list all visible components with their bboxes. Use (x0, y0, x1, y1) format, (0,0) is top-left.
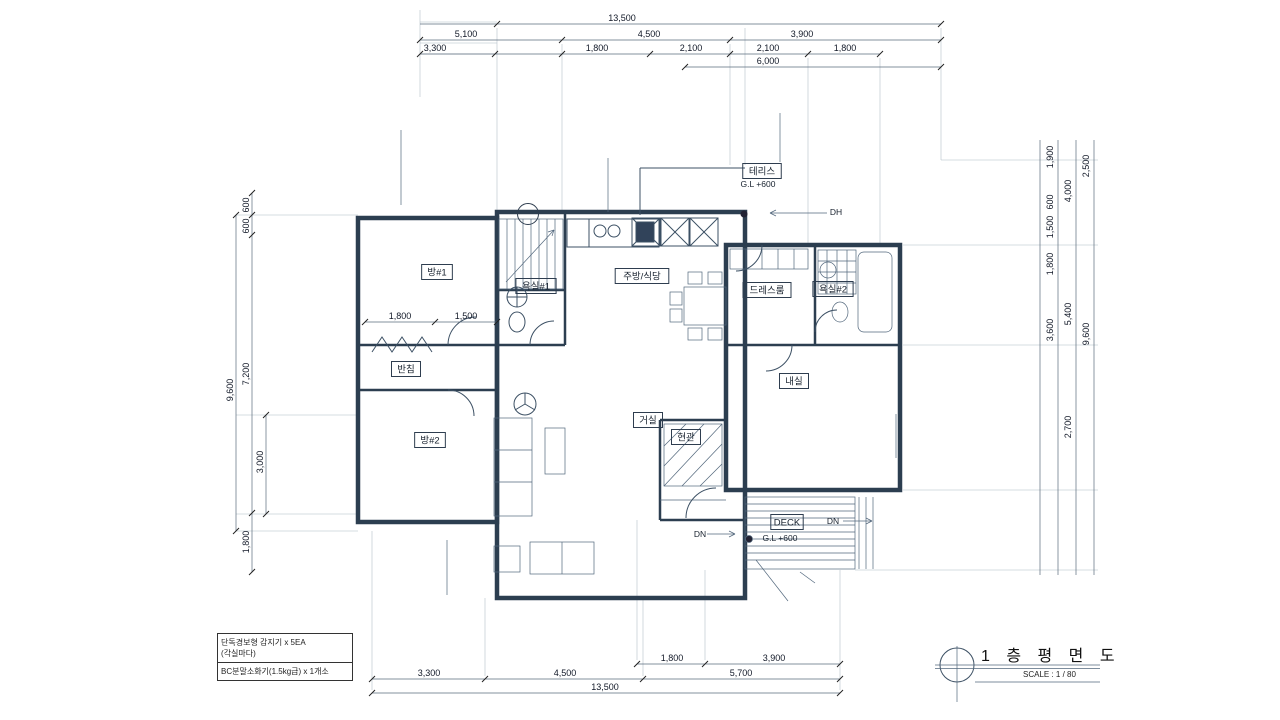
dimension-text: 2,500 (1081, 155, 1091, 178)
dimension-text: 600 (1045, 194, 1055, 209)
room-label: DECK (771, 515, 803, 530)
dimension-text: 9,600 (1081, 323, 1091, 346)
dimension-text: 5,700 (730, 668, 753, 678)
dimension-text: 1,800 (1045, 253, 1055, 276)
ceiling-fan (514, 393, 536, 415)
dimension-text: 4,000 (1063, 180, 1073, 203)
dimension-text: 13,500 (608, 13, 636, 23)
wardrobe (730, 249, 808, 269)
dimension-text: G.L +600 (741, 179, 776, 189)
dimension-text: 방#1 (427, 268, 446, 279)
dimension-text: 600 (241, 218, 251, 233)
dimension-text: 1,900 (1045, 146, 1055, 169)
dimension-text: 4,500 (638, 29, 661, 39)
room-label: 거실 (634, 413, 663, 428)
gl-marker (741, 211, 748, 218)
living-sofa (494, 418, 594, 574)
room-label: 방#1 (422, 265, 453, 280)
dimension-text: G.L +600 (763, 533, 798, 543)
dimension-text: DN (827, 516, 839, 526)
fire-note-line1: 단독경보형 감지기 x 5EA (221, 637, 349, 648)
dimension-text: 욕실#1 (522, 282, 550, 293)
dimension-text: 현관 (677, 433, 695, 444)
dimension-text: 600 (241, 197, 251, 212)
dimension-text: 3,300 (418, 668, 441, 678)
dimension-text: 주방/식당 (623, 272, 661, 283)
room-label: 방#2 (415, 433, 446, 448)
dimension-text: 2,100 (757, 43, 780, 53)
dimension-text: 1,800 (389, 311, 412, 321)
dimension-text: 3,300 (424, 43, 447, 53)
room-labels-layer: 방#1욕실#1주방/식당드레스룸욕실#2내실거실현관방#2반침테리스DECKG.… (392, 164, 854, 544)
dimension-text: DH (830, 207, 842, 217)
dimension-text: 6,000 (757, 56, 780, 66)
drawing-scale: SCALE : 1 / 80 (1023, 670, 1076, 679)
plan-drawing: 13,5005,1004,5003,9003,3001,8002,1002,10… (0, 0, 1280, 720)
dimension-text: 내실 (785, 377, 802, 388)
dimension-text: 1,800 (241, 531, 251, 554)
dimension-text: 욕실#2 (819, 285, 847, 296)
dimension-text: 테리스 (749, 167, 775, 178)
dimension-text: 3,000 (255, 451, 265, 474)
dimension-text: 거실 (639, 416, 656, 427)
dimension-text: 1,800 (586, 43, 609, 53)
dimension-text: 2,100 (680, 43, 703, 53)
floor-plan-sheet: 13,5005,1004,5003,9003,3001,8002,1002,10… (0, 0, 1280, 720)
dimension-text: 13,500 (591, 682, 619, 692)
dimension-text: 반침 (397, 365, 414, 376)
dimension-text: 1,800 (834, 43, 857, 53)
dimension-text: DECK (774, 518, 801, 529)
dimension-text: 4,500 (554, 668, 577, 678)
room-label: 드레스룸 (743, 283, 791, 298)
fire-equipment-box: 단독경보형 감지기 x 5EA (각실마다) BC분말소화기(1.5kg급) x… (217, 633, 353, 681)
fire-note-line3: BC분말소화기(1.5kg급) x 1개소 (218, 662, 352, 680)
room-label: 반침 (392, 362, 421, 377)
dimension-text: 3,900 (791, 29, 814, 39)
dimension-text: 3,600 (1045, 319, 1055, 342)
dimension-text: 1,500 (455, 311, 478, 321)
kitchen-counter (567, 219, 659, 247)
dimension-text: 2,700 (1063, 416, 1073, 439)
drawing-title: 1 층 평 면 도 (981, 642, 1121, 666)
dimensions-layer: 13,5005,1004,5003,9003,3001,8002,1002,10… (225, 13, 1094, 696)
dimension-text: 방#2 (420, 436, 439, 447)
dimension-text: 드레스룸 (750, 286, 785, 297)
dimension-text: 9,600 (225, 379, 235, 402)
fixtures-layer (372, 168, 892, 574)
dimension-text: DN (694, 529, 706, 539)
dining-table (670, 272, 726, 340)
dimension-text: 1,800 (661, 653, 684, 663)
fire-note-line2: (각실마다) (221, 648, 349, 659)
dimension-text: 5,100 (455, 29, 478, 39)
room-label: 테리스 (743, 164, 782, 179)
room-label: 주방/식당 (615, 269, 669, 284)
dimension-text: 1,500 (1045, 216, 1055, 239)
guide-lines (236, 10, 1098, 690)
dimension-text: 5,400 (1063, 303, 1073, 326)
dimension-text: 7,200 (241, 363, 251, 386)
room-label: 내실 (780, 374, 809, 389)
dimension-text: 3,900 (763, 653, 786, 663)
leader-lines (401, 113, 896, 601)
